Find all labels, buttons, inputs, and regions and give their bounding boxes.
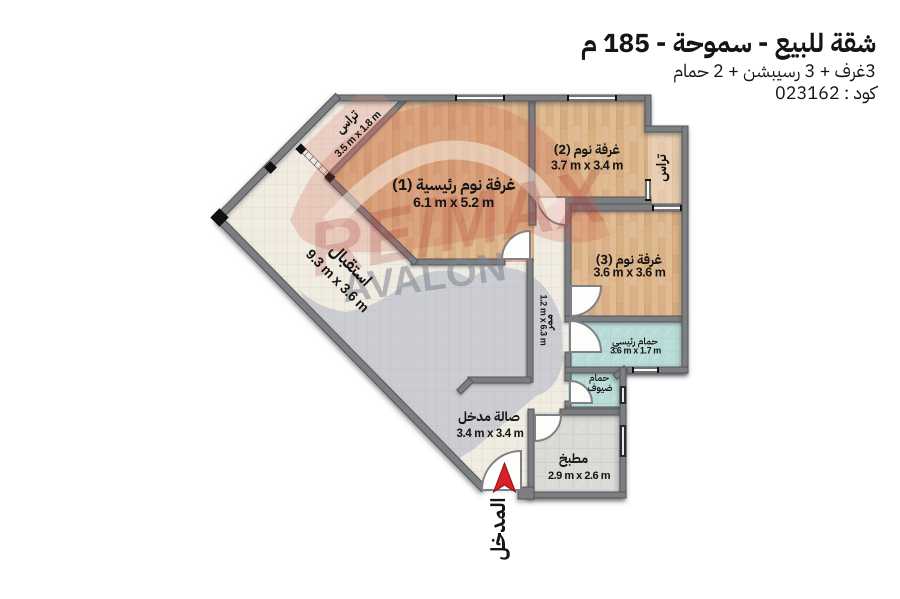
svg-text:3.6 m x 1.7 m: 3.6 m x 1.7 m <box>610 346 661 356</box>
svg-text:2.9 m x 2.6 m: 2.9 m x 2.6 m <box>548 470 611 482</box>
svg-text:6.1 m x 5.2 m: 6.1 m x 5.2 m <box>413 194 494 210</box>
svg-text:3.7 m x 3.4 m: 3.7 m x 3.4 m <box>551 159 623 173</box>
svg-text:3.4 m x 3.4 m: 3.4 m x 3.4 m <box>456 428 523 440</box>
svg-text:1.2 m x 6.3 m: 1.2 m x 6.3 m <box>539 295 549 346</box>
svg-text:3.6 m x 3.6 m: 3.6 m x 3.6 m <box>594 266 666 280</box>
